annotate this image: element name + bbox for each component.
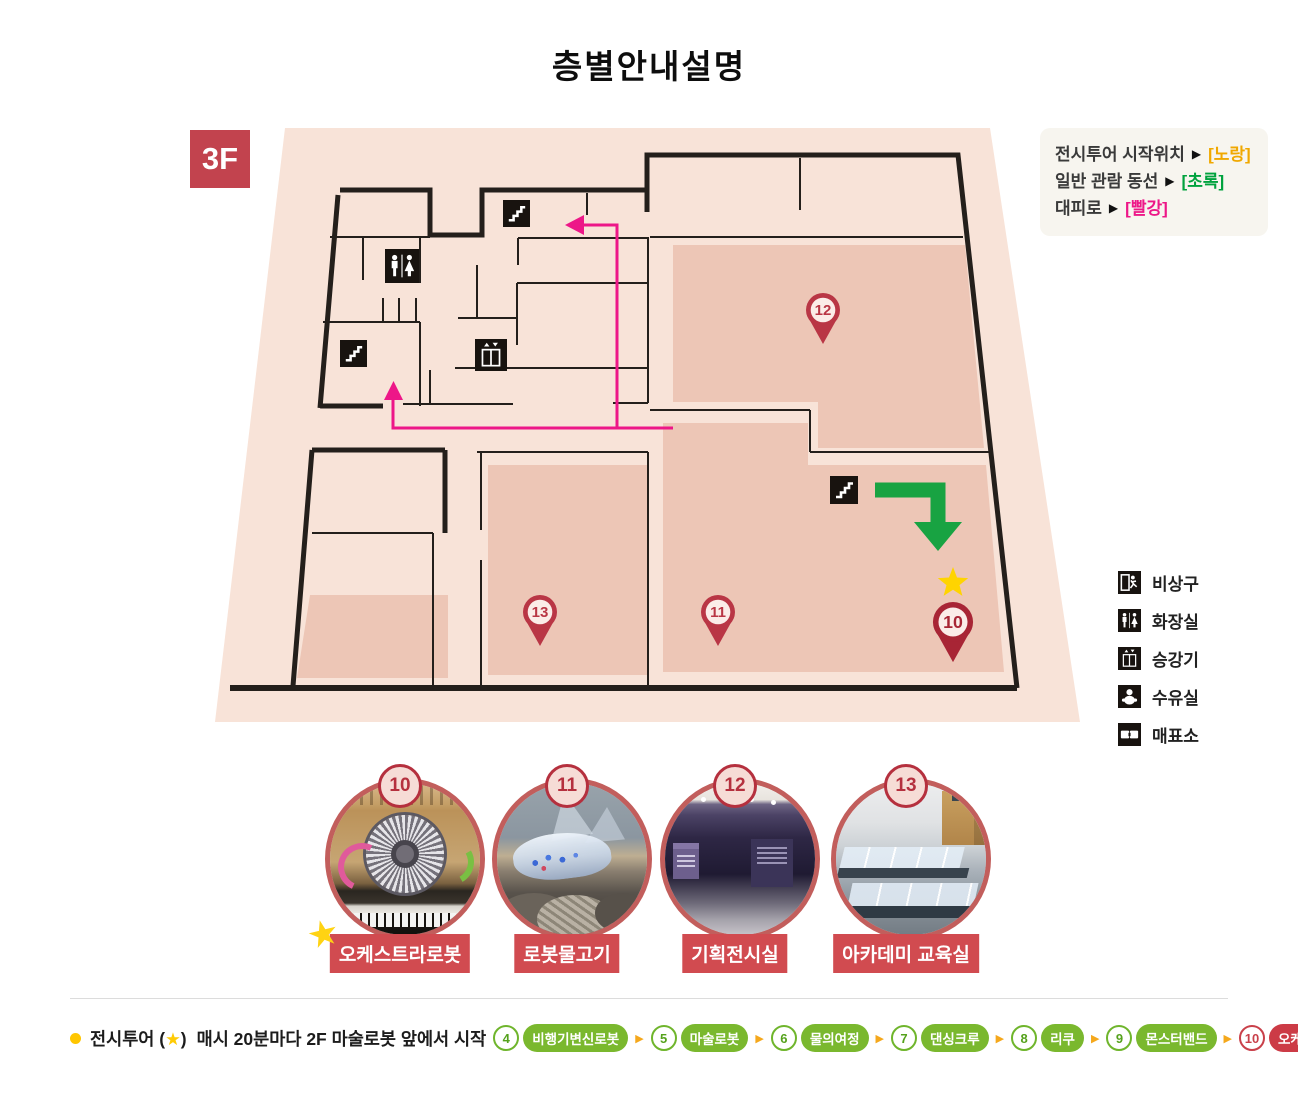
spot-label: 아카데미 교육실	[833, 934, 979, 973]
svg-text:12: 12	[815, 302, 832, 319]
tour-stop-number: 6	[771, 1025, 797, 1051]
tour-stop-10: 10오케스트라로봇	[1239, 1024, 1298, 1052]
spot-card-11: 11로봇물고기	[482, 766, 652, 972]
floor-plan: 12 13 11 10	[180, 110, 1100, 750]
route-legend-row: 전시투어 시작위치▶[노랑]	[1055, 141, 1253, 168]
room-13-area	[488, 465, 648, 675]
facility-legend-row: 승강기	[1118, 639, 1199, 677]
route-legend-value: [노랑]	[1208, 141, 1251, 168]
facility-legend-row: 비상구	[1118, 563, 1199, 601]
exit-icon	[1118, 571, 1141, 594]
tour-stop-number: 5	[651, 1025, 677, 1051]
tour-stop-label: 오케스트라로봇	[1269, 1024, 1298, 1052]
tour-route-bar: 전시투어 (★)매시 20분마다 2F 마술로봇 앞에서 시작4비행기변신로봇▶…	[70, 1024, 1298, 1052]
spot-label: 오케스트라로봇	[330, 934, 470, 973]
tour-stop-label: 몬스터밴드	[1136, 1024, 1216, 1052]
arrow-right-icon: ▶	[1165, 172, 1174, 191]
tour-stop-number: 9	[1106, 1025, 1132, 1051]
page-title: 층별안내설명	[0, 40, 1298, 88]
route-legend-row: 대피로▶[빨강]	[1055, 195, 1253, 222]
route-legend-value: [초록]	[1182, 168, 1225, 195]
tour-stop-number: 7	[891, 1025, 917, 1051]
elevator-icon	[475, 339, 507, 371]
tour-description: 매시 20분마다 2F 마술로봇 앞에서 시작	[197, 1029, 487, 1049]
route-legend-row: 일반 관람 동선▶[초록]	[1055, 168, 1253, 195]
tour-intro-text: 전시투어 (★)매시 20분마다 2F 마술로봇 앞에서 시작	[90, 1026, 486, 1051]
spot-number-badge: 11	[545, 764, 589, 808]
tour-stop-number: 4	[493, 1025, 519, 1051]
arrow-right-icon: ▶	[1224, 1032, 1232, 1045]
tour-stop-label: 비행기변신로봇	[523, 1024, 628, 1052]
spot-label: 기획전시실	[682, 934, 787, 973]
facility-legend-label: 화장실	[1152, 608, 1199, 633]
tour-stop-label: 리쿠	[1041, 1024, 1084, 1052]
arrow-right-icon: ▶	[1109, 199, 1118, 218]
arrow-right-icon: ▶	[755, 1032, 763, 1045]
facility-legend: 비상구화장실승강기수유실매표소	[1118, 563, 1199, 753]
tour-stop-number: 8	[1011, 1025, 1037, 1051]
spot-card-12: 12기획전시실	[650, 766, 820, 972]
arrow-right-icon: ▶	[635, 1032, 643, 1045]
ticket-icon	[1118, 723, 1141, 746]
stairs-icon	[503, 200, 530, 227]
facility-legend-label: 매표소	[1152, 722, 1199, 747]
tour-stop-number: 10	[1239, 1025, 1265, 1051]
tour-stop-9: 9몬스터밴드	[1106, 1024, 1216, 1052]
spot-card-10: 10오케스트라로봇★	[315, 766, 485, 972]
toilet-icon	[385, 249, 419, 283]
paren-close: )	[181, 1029, 187, 1049]
svg-text:11: 11	[710, 604, 726, 621]
facility-legend-row: 수유실	[1118, 677, 1199, 715]
svg-text:10: 10	[943, 612, 963, 632]
tour-stop-6: 6물의여정	[771, 1024, 869, 1052]
elevator-icon	[1118, 647, 1141, 670]
tour-stop-label: 물의여정	[801, 1024, 869, 1052]
spot-label: 로봇물고기	[514, 934, 619, 973]
tour-stop-5: 5마술로봇	[651, 1024, 749, 1052]
arrow-right-icon: ▶	[1192, 145, 1201, 164]
facility-legend-label: 승강기	[1152, 646, 1199, 671]
route-legend-label: 전시투어 시작위치	[1055, 141, 1185, 168]
arrow-right-icon: ▶	[1091, 1032, 1099, 1045]
tour-stop-8: 8리쿠	[1011, 1024, 1084, 1052]
arrow-right-icon: ▶	[876, 1032, 884, 1045]
arrow-right-icon: ▶	[996, 1032, 1004, 1045]
tour-stop-7: 7댄싱크루	[891, 1024, 989, 1052]
route-legend: 전시투어 시작위치▶[노랑]일반 관람 동선▶[초록]대피로▶[빨강]	[1040, 128, 1268, 236]
spot-number-badge: 13	[884, 764, 928, 808]
nursing-icon	[1118, 685, 1141, 708]
route-legend-label: 대피로	[1055, 195, 1102, 222]
spot-card-13: 13아카데미 교육실	[821, 766, 991, 972]
tour-stop-4: 4비행기변신로봇	[493, 1024, 628, 1052]
route-legend-value: [빨강]	[1125, 195, 1168, 222]
divider-line	[70, 998, 1228, 999]
spot-number-badge: 10	[378, 764, 422, 808]
tour-stop-label: 댄싱크루	[921, 1024, 989, 1052]
spot-number-badge: 12	[713, 764, 757, 808]
star-icon: ★	[165, 1029, 181, 1049]
stairs-icon	[340, 340, 367, 367]
facility-legend-label: 수유실	[1152, 684, 1199, 709]
toilet-icon	[1118, 609, 1141, 632]
svg-text:13: 13	[532, 604, 549, 621]
stairs-icon	[830, 476, 858, 504]
room-bottom-left-area	[297, 595, 448, 678]
route-legend-label: 일반 관람 동선	[1055, 168, 1158, 195]
facility-legend-row: 매표소	[1118, 715, 1199, 753]
tour-stop-label: 마술로봇	[681, 1024, 749, 1052]
facility-legend-label: 비상구	[1152, 570, 1199, 595]
tour-prefix: 전시투어	[90, 1029, 159, 1049]
facility-legend-row: 화장실	[1118, 601, 1199, 639]
bullet-icon	[70, 1033, 81, 1044]
